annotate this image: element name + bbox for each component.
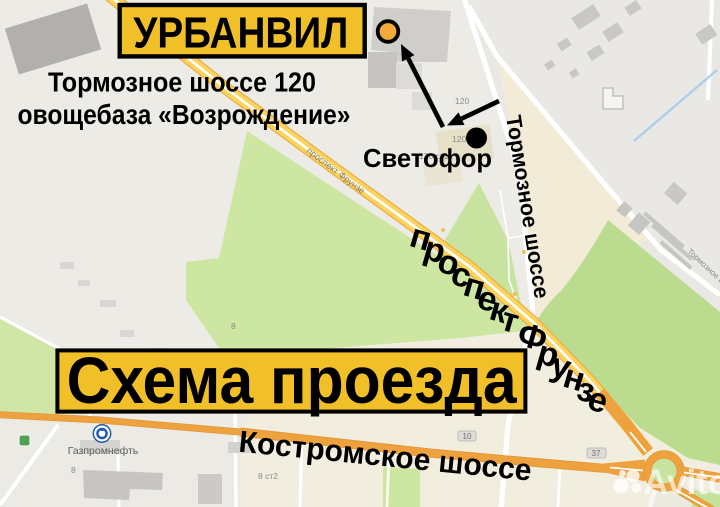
svg-text:Avito: Avito xyxy=(643,463,720,502)
svg-text:Тормозное шоссе 120: Тормозное шоссе 120 xyxy=(48,67,316,98)
svg-text:120: 120 xyxy=(455,96,469,106)
svg-text:УРБАНВИЛ: УРБАНВИЛ xyxy=(133,9,348,58)
svg-text:10: 10 xyxy=(463,432,472,441)
svg-text:37: 37 xyxy=(592,449,601,458)
svg-text:Схема проезда: Схема проезда xyxy=(67,343,518,417)
svg-text:Светофор: Светофор xyxy=(363,143,492,173)
svg-text:8: 8 xyxy=(71,465,76,475)
svg-text:8 ст2: 8 ст2 xyxy=(258,471,278,481)
svg-text:Газпромнефть: Газпромнефть xyxy=(68,445,139,457)
svg-text:8: 8 xyxy=(231,321,236,331)
svg-text:овощебаза «Возрождение»: овощебаза «Возрождение» xyxy=(18,99,351,130)
